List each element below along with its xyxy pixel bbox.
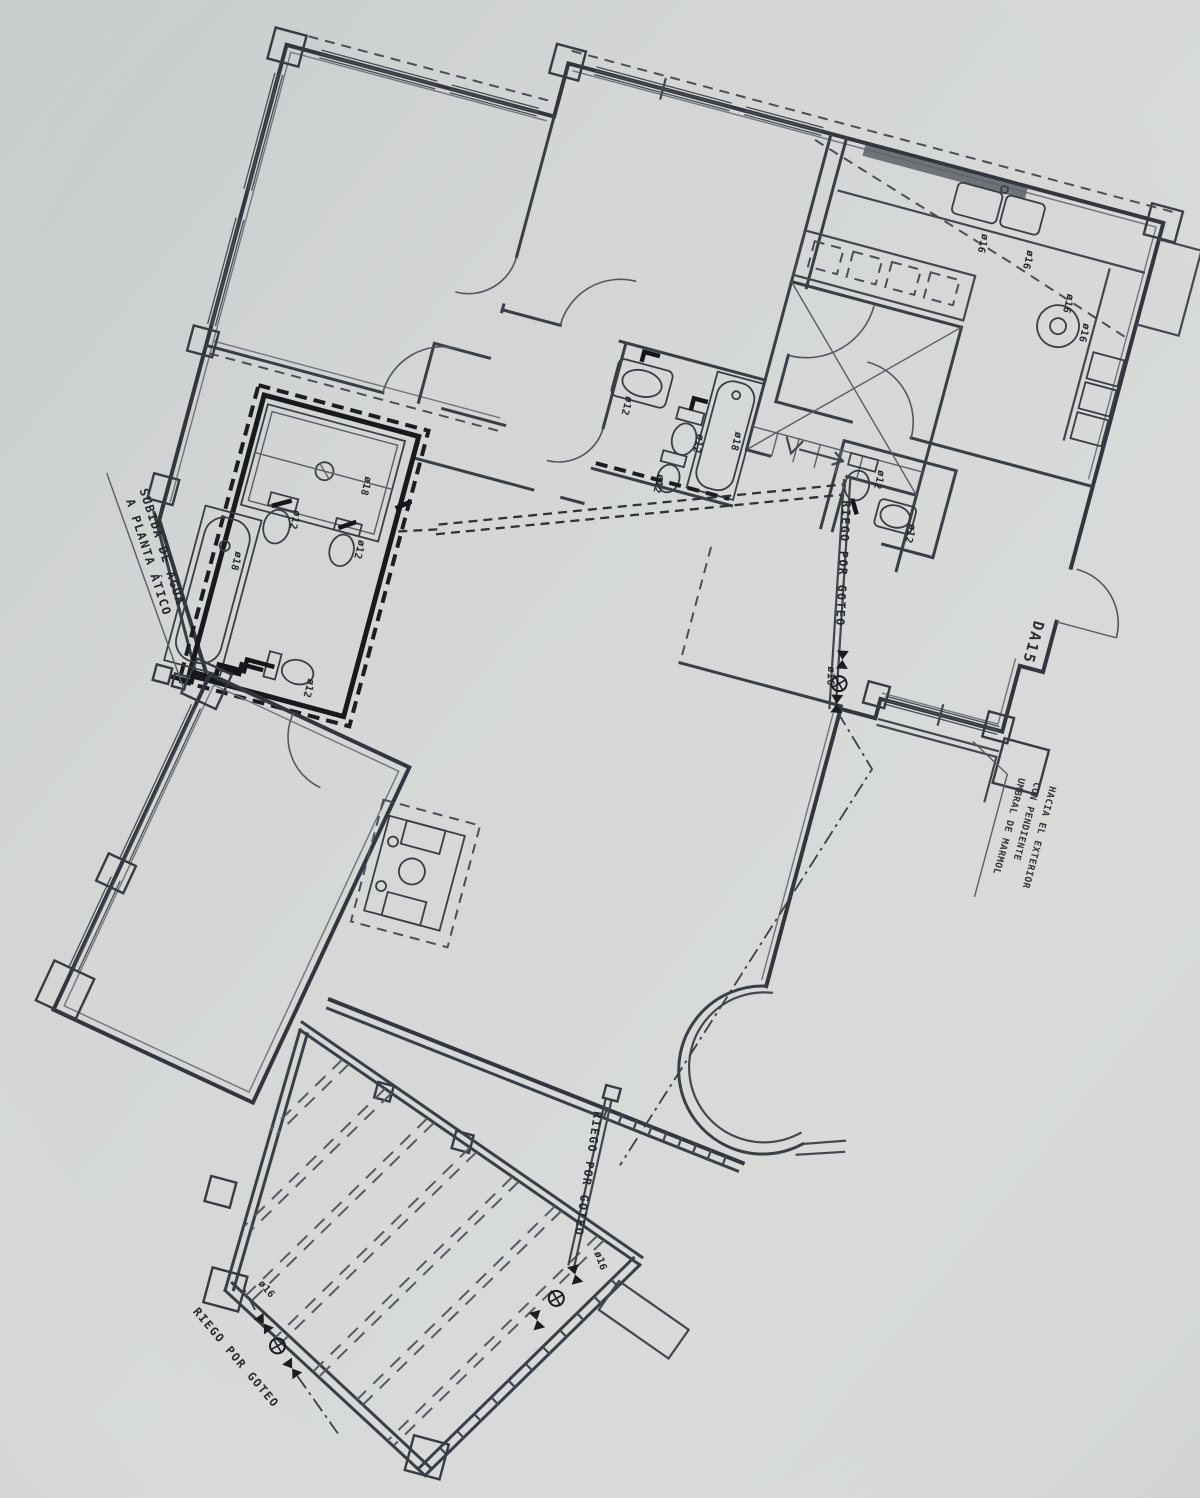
photo-vignette <box>0 0 1200 1498</box>
scanned-floor-plan: SUBIDA DE AGUA A PLANTA ÁTICO RIEGO POR … <box>0 0 1200 1498</box>
floor-plan-svg: SUBIDA DE AGUA A PLANTA ÁTICO RIEGO POR … <box>0 0 1200 1498</box>
